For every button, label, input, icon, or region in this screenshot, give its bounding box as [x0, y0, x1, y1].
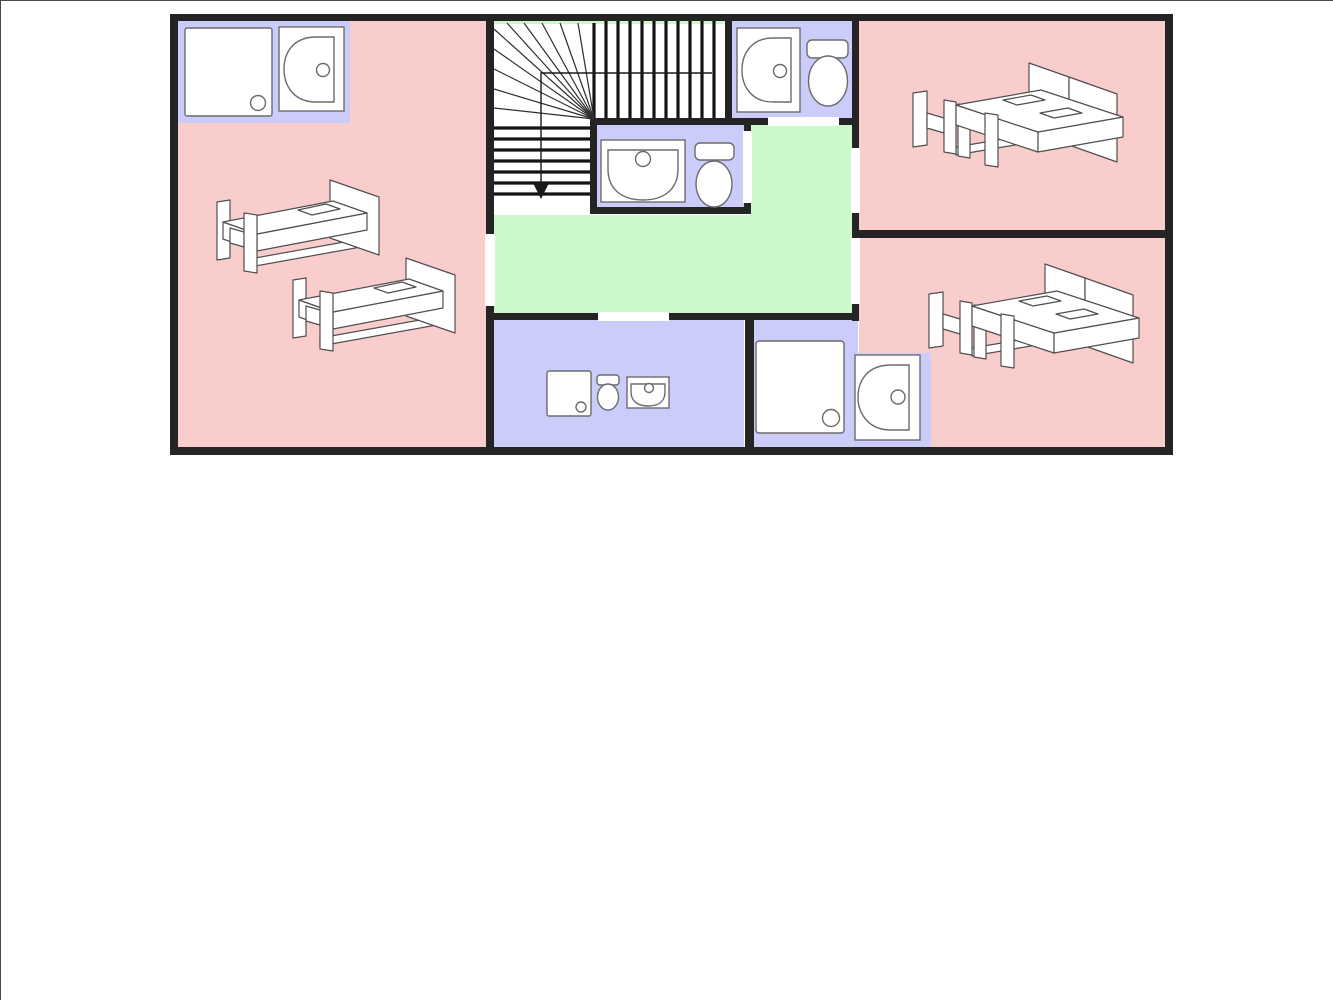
wall-left-bedroom: [486, 14, 494, 447]
shower-drain-icon: [576, 402, 586, 412]
washbasin-bottom-right: [855, 355, 920, 440]
basin-tap-icon: [891, 390, 905, 404]
door-middle-bathroom: [743, 131, 752, 203]
shower-drain-icon: [251, 96, 266, 111]
wall-midbath-left: [590, 119, 597, 214]
door-bottom-right-bedroom: [851, 238, 860, 304]
toilet-bowl: [809, 56, 848, 106]
basin-tap-icon: [636, 152, 651, 167]
door-left-bedroom: [485, 234, 495, 306]
shower-drain-icon: [823, 410, 840, 427]
basin-tap-icon: [317, 64, 330, 77]
shower-tray-top-left: [185, 28, 272, 116]
wall-right-bedrooms: [852, 230, 1173, 238]
door-top-right-bedroom: [851, 148, 860, 213]
basin-tap-icon: [645, 384, 654, 393]
toilet-cistern: [695, 143, 734, 160]
toilet-top-bathroom: [807, 40, 848, 106]
stairwell-floor-upper: [594, 21, 725, 119]
basin-tap-icon: [774, 65, 787, 78]
washbasin-bottom-center: [627, 377, 669, 408]
toilet-bowl: [696, 161, 732, 207]
toilet-cistern: [807, 40, 848, 58]
wall-midbath-bottom: [590, 207, 751, 214]
wall-outer-bottom: [170, 447, 1173, 455]
wall-outer-left: [170, 14, 178, 455]
wall-hall-bottom: [486, 313, 859, 320]
toilet-middle-bathroom: [695, 143, 734, 207]
washbasin-middle-bathroom: [601, 140, 685, 202]
door-bottom-bathroom: [598, 312, 669, 321]
washbasin-top-left: [279, 27, 344, 111]
floor-plan-page: [0, 0, 1333, 1000]
wall-outer-top: [170, 14, 1173, 21]
shower-tray-bottom-center: [547, 371, 591, 416]
wall-stairs-bathroom: [725, 14, 732, 123]
toilet-bowl: [598, 384, 619, 410]
washbasin-top-bathroom: [737, 28, 800, 112]
wall-bottom-baths: [745, 314, 754, 454]
door-top-bathroom: [768, 117, 839, 126]
floor-plan: [1, 1, 1333, 1001]
shower-tray-bottom-right: [756, 341, 844, 433]
toilet-bottom-center: [597, 375, 619, 410]
